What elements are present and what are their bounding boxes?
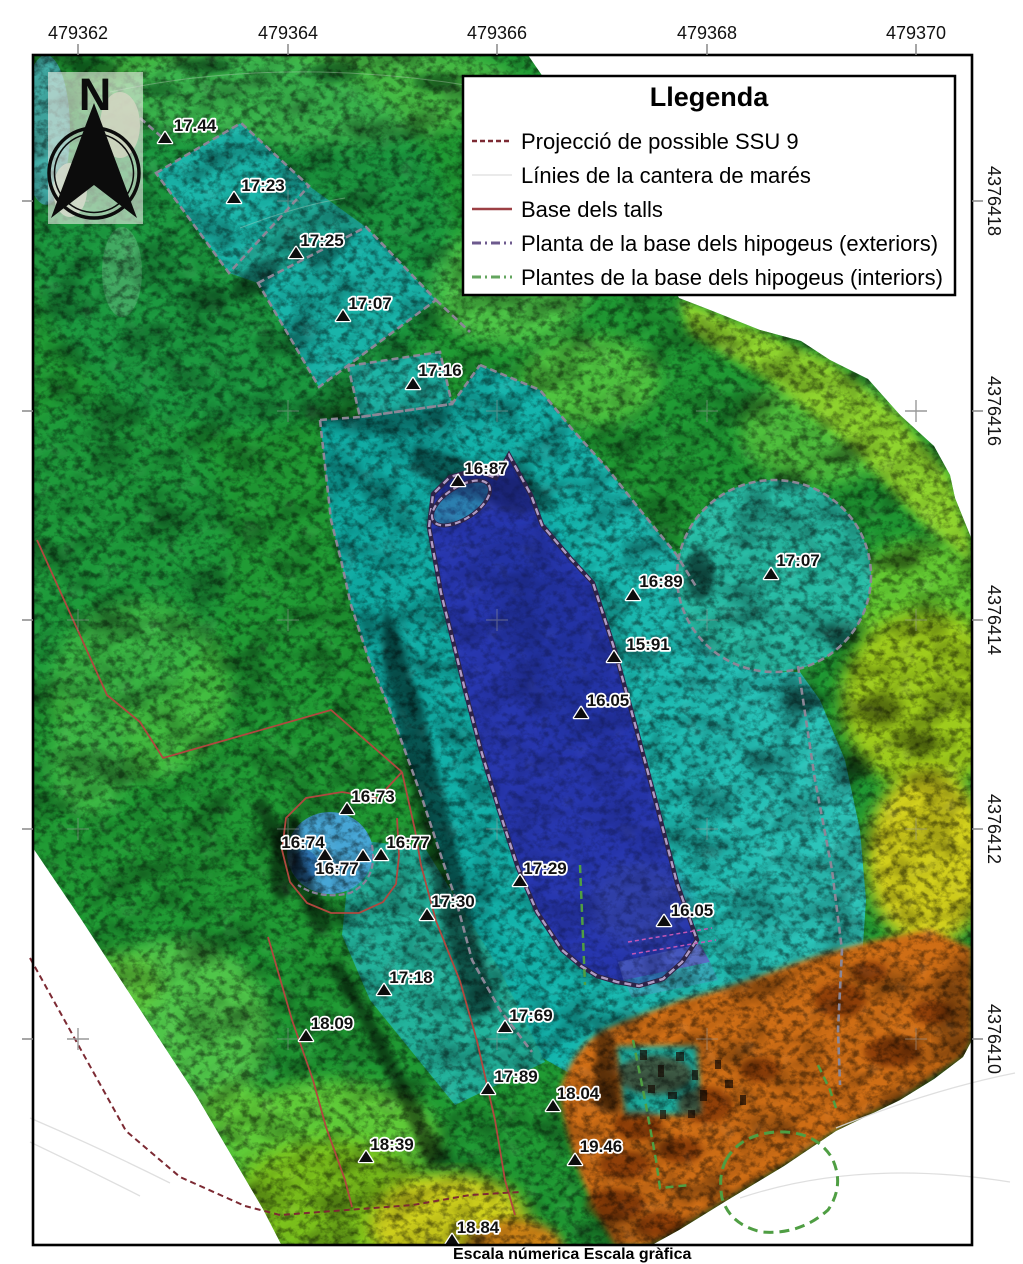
svg-text:18.84: 18.84 [457,1218,500,1237]
svg-text:479366: 479366 [467,23,527,43]
svg-text:17:07: 17:07 [776,551,819,570]
svg-text:17:29: 17:29 [523,859,566,878]
svg-text:479362: 479362 [48,23,108,43]
svg-text:17:69: 17:69 [509,1006,552,1025]
svg-text:18.09: 18.09 [311,1014,354,1033]
svg-text:17:16: 17:16 [418,361,461,380]
svg-text:4376410: 4376410 [984,1004,1004,1074]
svg-text:18.04: 18.04 [557,1084,600,1103]
svg-text:16:74: 16:74 [281,833,325,852]
svg-text:4376412: 4376412 [984,794,1004,864]
svg-text:4376416: 4376416 [984,376,1004,446]
svg-text:479368: 479368 [677,23,737,43]
svg-text:Línies de la cantera de marés: Línies de la cantera de marés [521,163,811,188]
svg-text:17:30: 17:30 [431,892,474,911]
svg-text:16:87: 16:87 [464,459,507,478]
svg-text:17:18: 17:18 [389,968,432,987]
svg-text:Llegenda: Llegenda [650,82,770,112]
svg-text:Escala númerica Escala gràfic: Escala númerica Escala gràfica [453,1246,691,1263]
svg-text:19.46: 19.46 [580,1137,623,1156]
svg-text:Planta de la base dels hipogeu: Planta de la base dels hipogeus (exterio… [521,231,938,256]
svg-text:4376418: 4376418 [984,166,1004,236]
svg-text:17:07: 17:07 [348,294,391,313]
svg-text:16.05: 16.05 [671,901,714,920]
svg-text:479370: 479370 [886,23,946,43]
svg-text:4376414: 4376414 [984,585,1004,655]
svg-text:Base dels talls: Base dels talls [521,197,663,222]
svg-text:17:89: 17:89 [494,1067,537,1086]
svg-text:Plantes de la base dels hipoge: Plantes de la base dels hipogeus (interi… [521,265,943,290]
svg-text:16:77: 16:77 [386,833,429,852]
svg-text:17:25: 17:25 [300,231,343,250]
svg-text:18:39: 18:39 [370,1135,413,1154]
svg-text:15:91: 15:91 [626,635,669,654]
svg-text:17:23: 17:23 [241,176,284,195]
svg-text:17.44: 17.44 [174,116,217,135]
svg-text:479364: 479364 [258,23,318,43]
svg-text:16.05: 16.05 [587,691,630,710]
svg-text:Projecció de possible SSU 9: Projecció de possible SSU 9 [521,129,799,154]
svg-text:16:77: 16:77 [315,859,358,878]
svg-text:16:89: 16:89 [639,572,682,591]
svg-text:16:73: 16:73 [351,787,394,806]
